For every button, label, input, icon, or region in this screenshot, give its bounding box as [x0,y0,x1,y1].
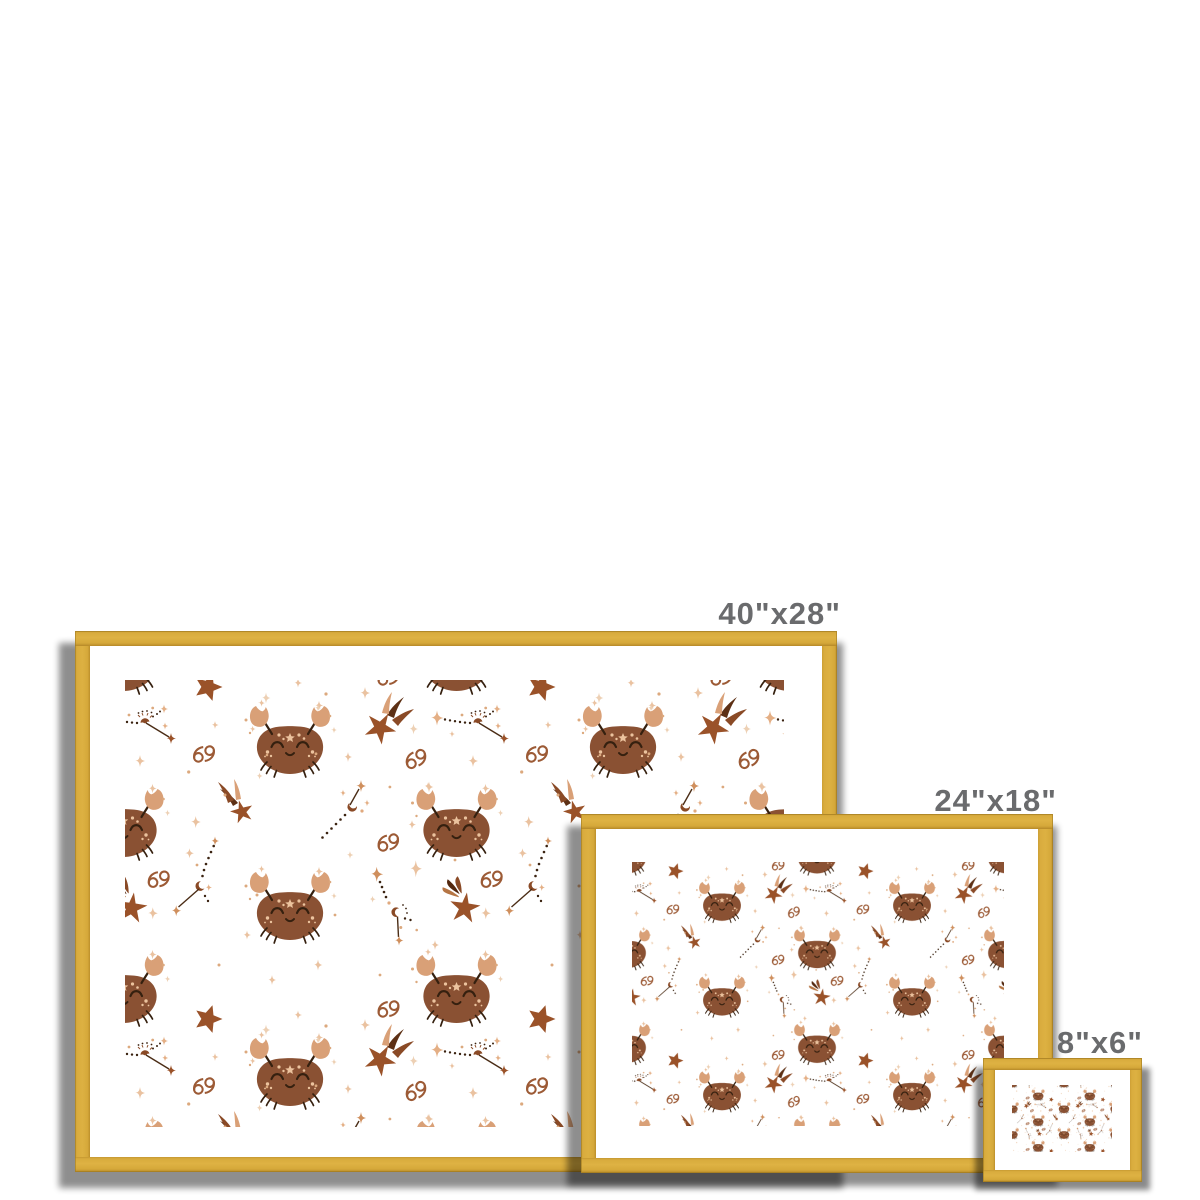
svg-text:8"x6": 8"x6" [1057,1025,1143,1060]
svg-text:40"x28": 40"x28" [718,596,841,631]
svg-text:24"x18": 24"x18" [934,783,1057,818]
